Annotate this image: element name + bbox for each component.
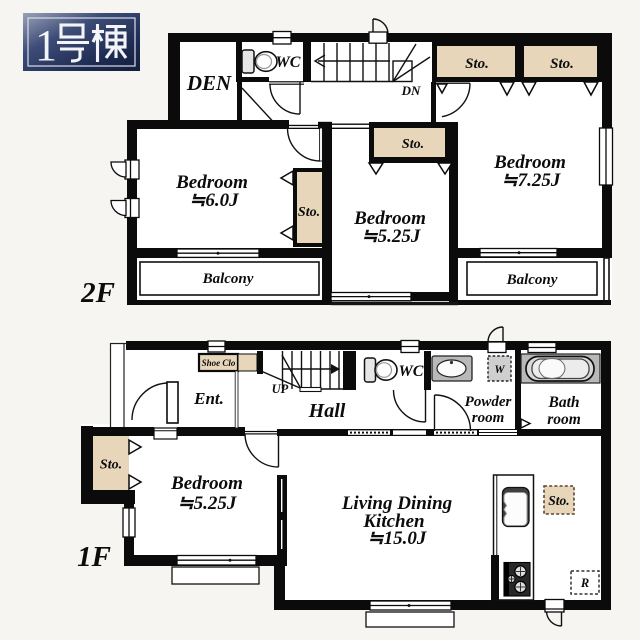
svg-text:1: 1 (35, 21, 57, 70)
svg-text:WC: WC (276, 54, 301, 71)
svg-text:≒5.25J: ≒5.25J (178, 493, 237, 514)
svg-text:≒5.25J: ≒5.25J (362, 226, 421, 247)
svg-text:Sto.: Sto. (465, 56, 489, 72)
svg-text:≒6.0J: ≒6.0J (189, 190, 239, 211)
svg-text:1F: 1F (77, 541, 111, 573)
svg-text:UP: UP (272, 382, 289, 396)
svg-text:Sto.: Sto. (402, 137, 424, 152)
svg-text:room: room (547, 411, 581, 428)
svg-text:R: R (580, 576, 589, 590)
svg-text:Shoe Clo: Shoe Clo (202, 358, 236, 368)
svg-text:W: W (494, 364, 505, 376)
svg-text:Bedroom: Bedroom (170, 473, 243, 494)
svg-text:Sto.: Sto. (100, 458, 122, 473)
svg-text:Ent.: Ent. (193, 389, 224, 408)
svg-text:≒15.0J: ≒15.0J (368, 528, 427, 549)
svg-text:room: room (472, 410, 505, 426)
svg-text:Balcony: Balcony (506, 272, 558, 288)
svg-text:2F: 2F (80, 277, 115, 309)
svg-text:Hall: Hall (308, 400, 346, 422)
svg-text:Sto.: Sto. (298, 205, 320, 220)
svg-text:Sto.: Sto. (548, 493, 569, 508)
svg-text:Powder: Powder (465, 394, 512, 410)
svg-text:DEN: DEN (186, 71, 232, 95)
svg-text:Bath: Bath (547, 394, 579, 411)
svg-text:≒7.25J: ≒7.25J (502, 170, 561, 191)
svg-text:WC: WC (399, 363, 424, 380)
svg-text:DN: DN (401, 83, 421, 98)
svg-text:Sto.: Sto. (550, 56, 574, 72)
svg-text:Balcony: Balcony (202, 271, 254, 287)
